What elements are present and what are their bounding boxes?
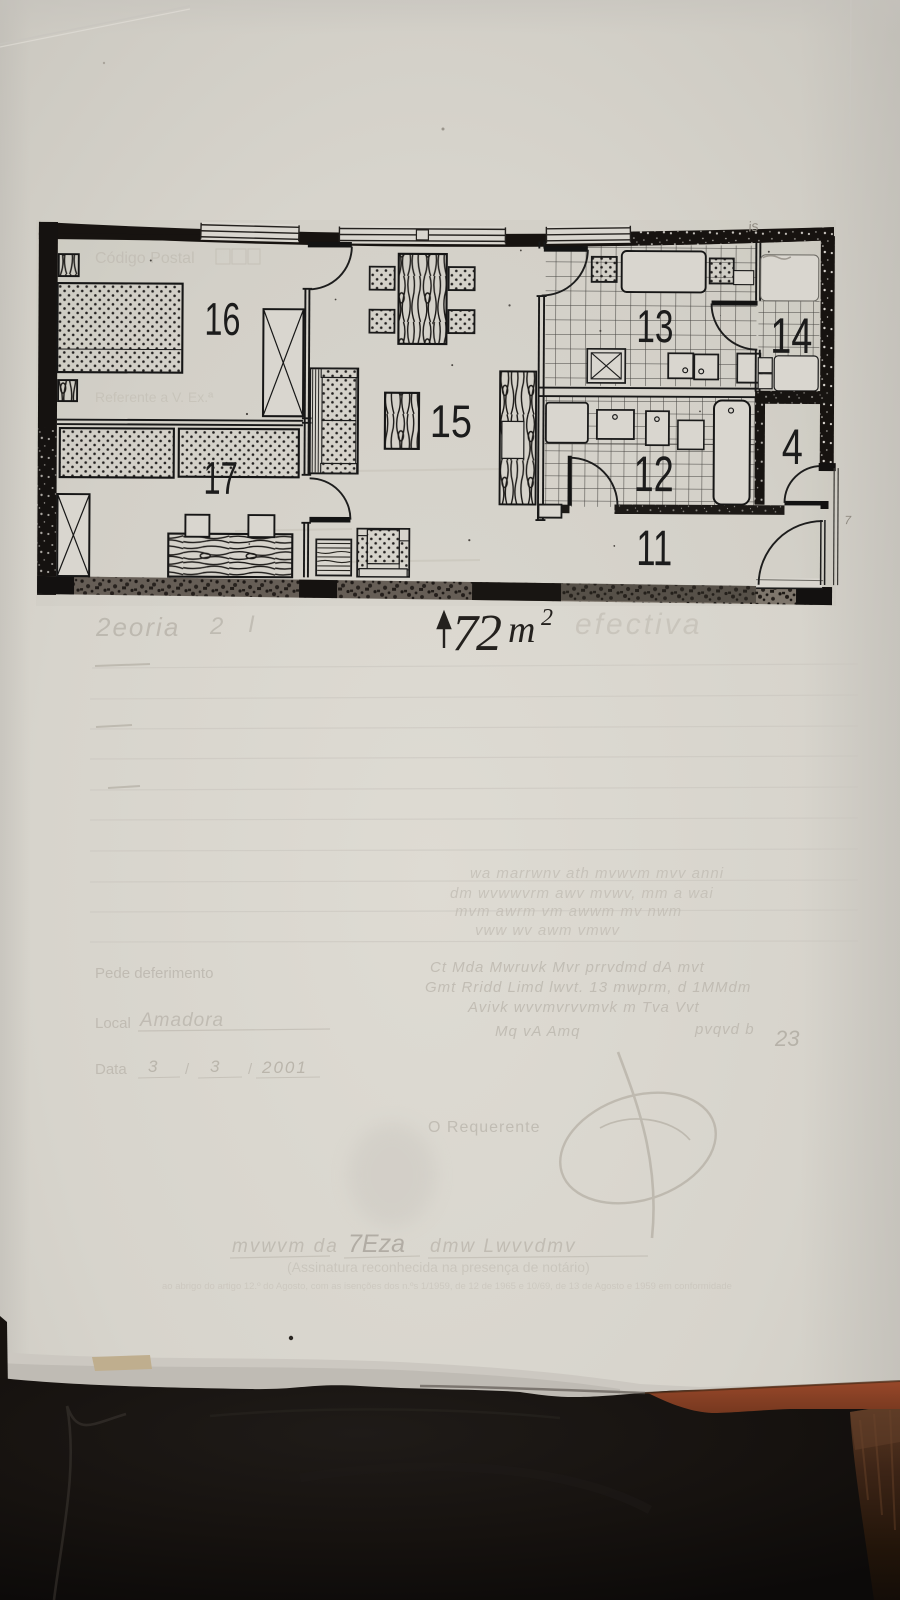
svg-text:O Requerente: O Requerente <box>428 1119 541 1136</box>
svg-text:4: 4 <box>782 419 803 475</box>
svg-text:Pede deferimento: Pede deferimento <box>95 965 213 982</box>
svg-text:13: 13 <box>636 300 673 352</box>
svg-text:is: is <box>747 217 759 234</box>
svg-text:pvqvd b: pvqvd b <box>694 1021 755 1038</box>
svg-text:Local: Local <box>95 1015 131 1032</box>
svg-text:ao abrigo do artigo 12.º do Ag: ao abrigo do artigo 12.º do Agosto, com … <box>162 1281 732 1292</box>
svg-text:wa marrwnv ath mvwvm mvv anni: wa marrwnv ath mvwvm mvv anni <box>470 865 724 882</box>
svg-text:12: 12 <box>634 446 674 502</box>
svg-text:Avivk wvvmvrvvmvk m Tva Vvt: Avivk wvvmvrvvmvk m Tva Vvt <box>467 999 700 1016</box>
svg-text:2: 2 <box>541 605 553 631</box>
svg-text:efectiva: efectiva <box>575 608 702 641</box>
svg-text:Amadora: Amadora <box>139 1010 224 1031</box>
svg-text:3: 3 <box>210 1057 220 1076</box>
svg-text:Data: Data <box>95 1061 127 1078</box>
svg-text:16: 16 <box>204 293 240 345</box>
svg-text:mvwvm da: mvwvm da <box>232 1236 339 1257</box>
svg-text:3: 3 <box>148 1057 158 1076</box>
svg-text:Ct Mda Mwruvk Mvr prrvdmd dA m: Ct Mda Mwruvk Mvr prrvdmd dA mvt <box>430 959 705 976</box>
svg-text:dmw Lwvvdmv: dmw Lwvvdmv <box>430 1236 577 1257</box>
svg-text:vww wv awm vmwv: vww wv awm vmwv <box>475 922 620 939</box>
svg-text:Gmt Rridd Limd lwvt. 13 mwprm,: Gmt Rridd Limd lwvt. 13 mwprm, d 1MMdm <box>425 979 751 996</box>
svg-text:2eoria: 2eoria <box>95 612 180 642</box>
svg-text:2: 2 <box>209 613 223 640</box>
svg-text:17: 17 <box>204 452 238 504</box>
svg-text:11: 11 <box>636 520 672 576</box>
svg-text:(Assinatura reconhecida na pre: (Assinatura reconhecida na presença de n… <box>287 1259 590 1275</box>
svg-text:Mq vA Amq: Mq vA Amq <box>495 1023 580 1040</box>
svg-text:dm wvwwvrm awv mvwv, mm a wai: dm wvwwvrm awv mvwv, mm a wai <box>450 885 714 902</box>
svg-text:7Eza: 7Eza <box>348 1230 405 1258</box>
svg-text:23: 23 <box>774 1026 800 1051</box>
svg-text:14: 14 <box>770 308 812 364</box>
svg-text:2001: 2001 <box>261 1058 308 1077</box>
svg-text:72: 72 <box>452 605 501 662</box>
svg-text:I: I <box>248 611 255 638</box>
svg-text:mvm awrm vm awwm mv nwm: mvm awrm vm awwm mv nwm <box>455 903 682 920</box>
svg-text:m: m <box>508 609 535 651</box>
svg-text:15: 15 <box>430 395 472 447</box>
